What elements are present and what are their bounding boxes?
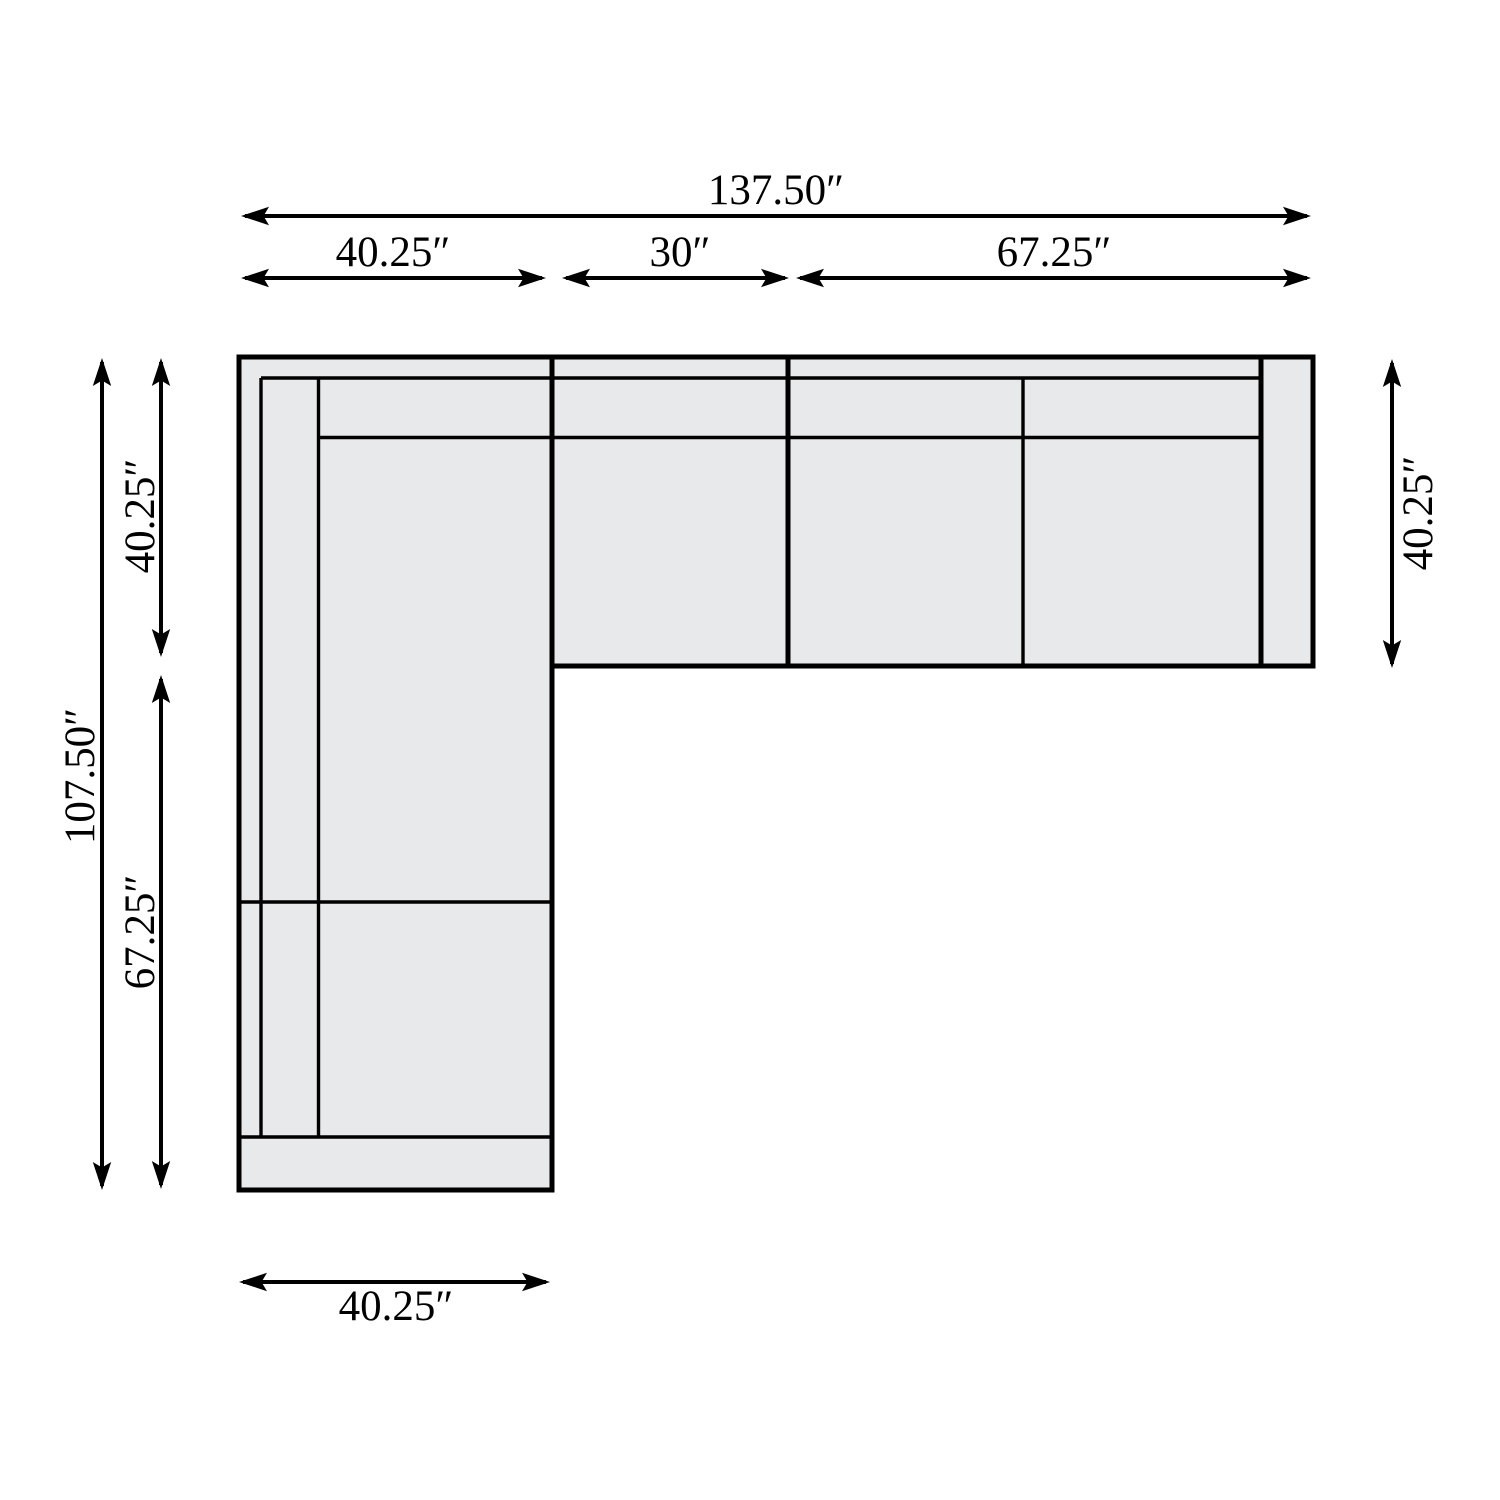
svg-text:40.25″: 40.25″	[339, 1283, 454, 1330]
svg-text:40.25″: 40.25″	[336, 229, 451, 276]
svg-text:137.50″: 137.50″	[708, 167, 844, 214]
svg-text:40.25″: 40.25″	[1395, 456, 1442, 571]
svg-text:67.25″: 67.25″	[997, 229, 1112, 276]
svg-text:67.25″: 67.25″	[117, 875, 164, 990]
svg-text:40.25″: 40.25″	[117, 459, 164, 574]
svg-text:107.50″: 107.50″	[57, 708, 104, 844]
svg-text:30″: 30″	[650, 229, 711, 276]
